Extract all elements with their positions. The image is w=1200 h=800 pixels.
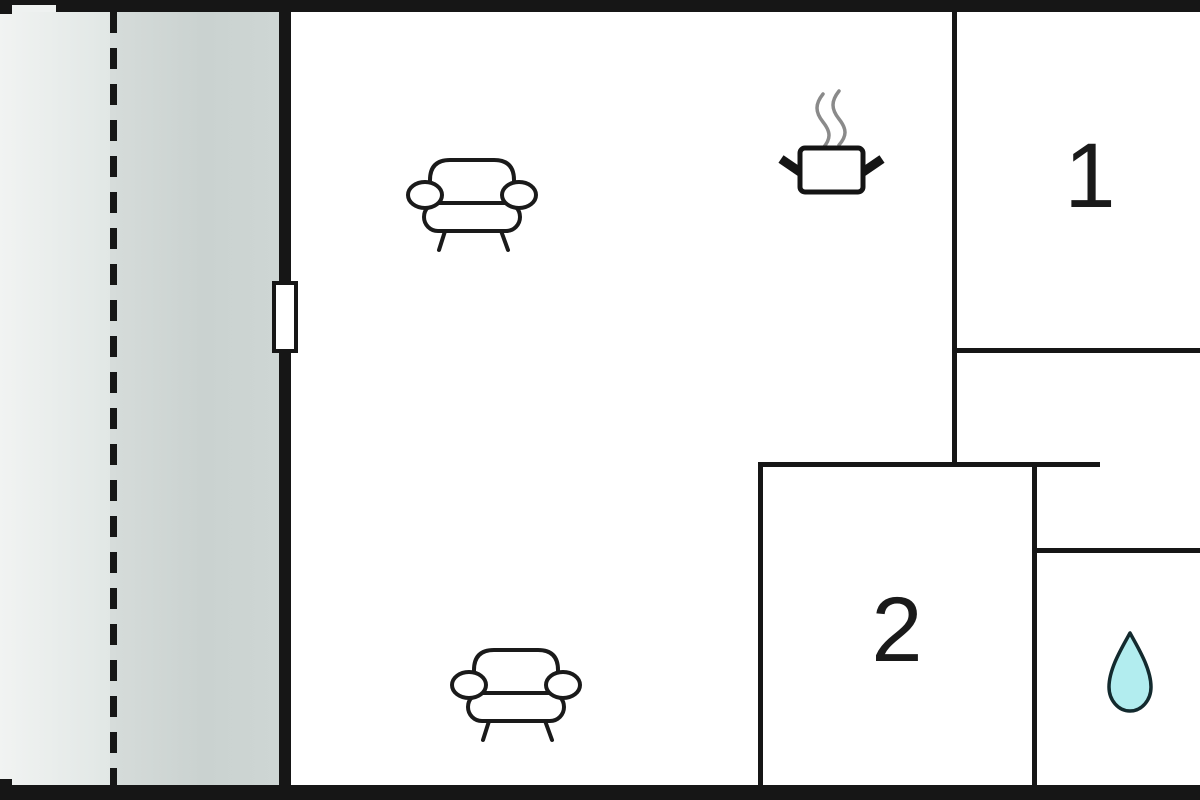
bedroom-1-left-wall [952,12,957,467]
terrace-partition-wall [279,0,291,800]
outer-wall-bottom [0,785,1200,800]
outer-wall-top-notch [12,5,56,12]
water-drop-icon [1103,630,1157,716]
sofa-icon [450,646,582,744]
bedroom-2-label: 2 [842,574,952,686]
bathroom-top-wall [1032,548,1200,553]
bedroom-1-label: 1 [1035,120,1145,232]
door-marker [272,281,298,353]
bedroom-2-right-wall [1032,462,1037,785]
bedroom-2-top-wall [758,462,1100,467]
floor-plan: 1 2 [0,0,1200,800]
terrace-area [110,12,279,785]
bedroom-1-bottom-wall [952,348,1200,353]
sofa-icon [406,156,538,254]
outer-wall-bottom-left-corner [0,779,12,800]
outside-area [0,12,110,785]
terrace-boundary-dashed-line [110,12,117,785]
outer-wall-top-left-corner [0,0,12,14]
bedroom-2-left-wall [758,462,763,785]
cooking-pot-icon [775,87,888,195]
outer-wall-top [0,0,1200,12]
